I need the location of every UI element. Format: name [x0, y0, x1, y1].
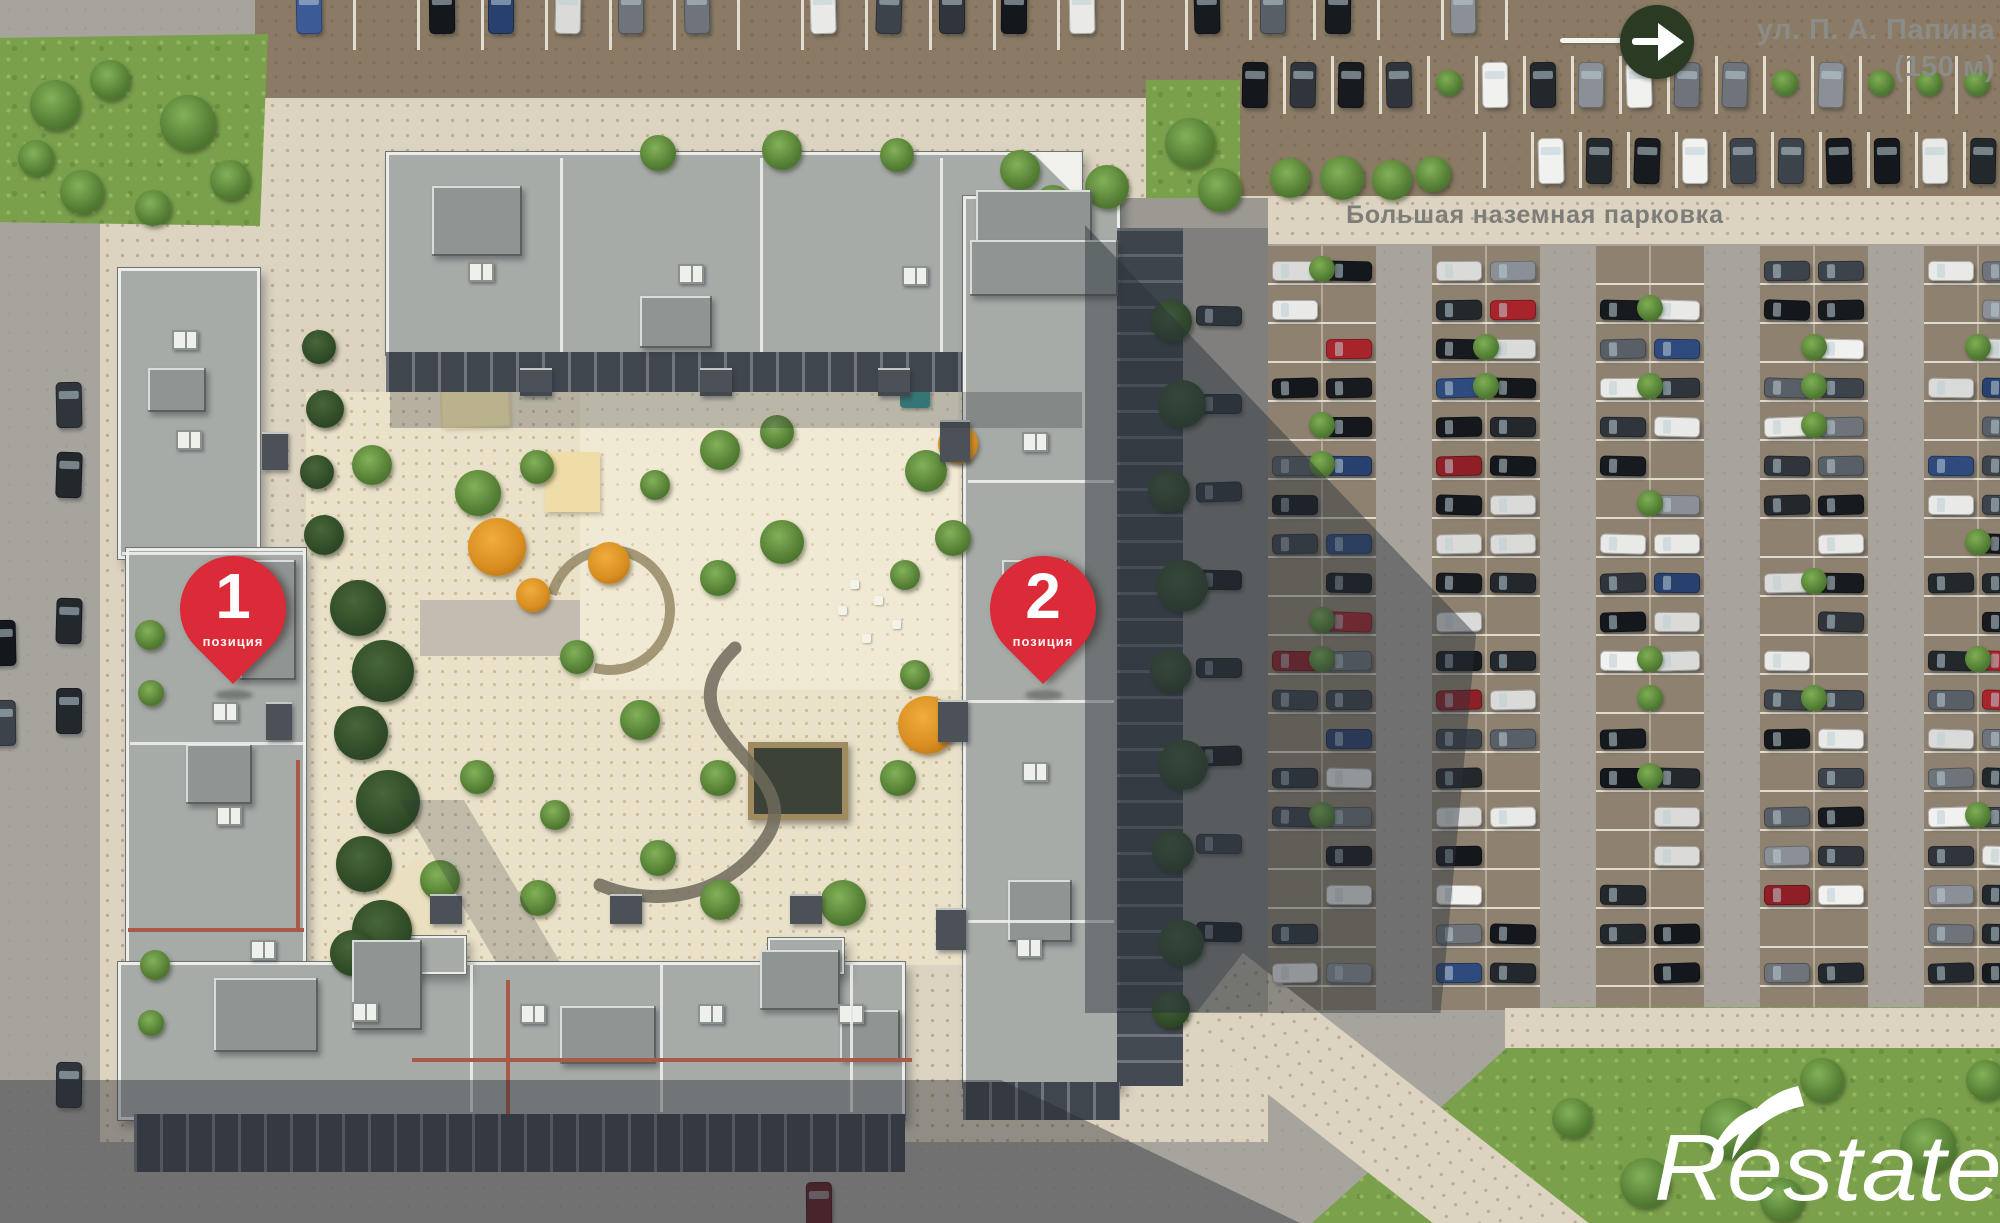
- car: [1482, 62, 1509, 108]
- bush: [1637, 646, 1663, 672]
- car: [1654, 573, 1700, 593]
- car: [1764, 963, 1810, 983]
- car: [1196, 481, 1243, 502]
- roof-seam: [560, 158, 563, 352]
- car-windshield: [1663, 537, 1671, 551]
- tree: [520, 880, 556, 916]
- car: [1928, 728, 1974, 749]
- car: [1654, 962, 1701, 984]
- car: [1928, 767, 1975, 789]
- car: [1326, 534, 1372, 554]
- car: [1654, 924, 1700, 945]
- tree: [540, 800, 570, 830]
- car: [875, 0, 902, 34]
- car-windshield: [1205, 925, 1213, 939]
- car: [1436, 689, 1483, 710]
- car-windshield: [809, 1191, 829, 1199]
- car-windshield: [1827, 381, 1835, 395]
- car-windshield: [1937, 732, 1945, 746]
- tree: [700, 880, 740, 920]
- car: [1928, 923, 1974, 944]
- car-windshield: [1335, 966, 1343, 980]
- car: [1982, 689, 2000, 710]
- roof-hatch: [902, 266, 928, 286]
- roof-hatch: [352, 1002, 378, 1022]
- car-windshield: [1663, 381, 1671, 395]
- roof-hatch: [250, 940, 276, 960]
- tree: [890, 560, 920, 590]
- car-windshield: [1499, 810, 1507, 824]
- bush: [1965, 334, 1991, 360]
- car: [1272, 377, 1319, 398]
- car-windshield: [1937, 810, 1945, 824]
- car-windshield: [1827, 810, 1835, 824]
- dark-tree: [1152, 990, 1190, 1028]
- car: [1764, 845, 1810, 866]
- car: [1193, 0, 1220, 34]
- car: [1326, 377, 1372, 398]
- roof-unit: [640, 296, 712, 348]
- car-windshield: [1335, 810, 1343, 824]
- roof-hatch: [678, 264, 704, 284]
- car-windshield: [1533, 71, 1553, 79]
- car: [1982, 767, 2000, 789]
- tree: [760, 415, 794, 449]
- car: [1436, 417, 1482, 438]
- car-windshield: [1991, 459, 1999, 473]
- car: [1928, 690, 1974, 711]
- roof-seam: [850, 965, 853, 1112]
- car-windshield: [1499, 576, 1507, 590]
- car-windshield: [1609, 459, 1617, 473]
- entrance-stub: [940, 420, 970, 462]
- plaza-object: [862, 634, 871, 643]
- car-windshield: [1499, 420, 1507, 434]
- car: [1818, 456, 1864, 477]
- bush: [1965, 529, 1991, 555]
- car-windshield: [1937, 381, 1945, 395]
- roof-hatch: [1022, 432, 1048, 452]
- car: [1982, 885, 2000, 906]
- terracotta-line: [128, 928, 304, 932]
- car-windshield: [1499, 342, 1507, 356]
- car-windshield: [1445, 966, 1453, 980]
- car: [1338, 62, 1365, 108]
- car-windshield: [1245, 71, 1265, 79]
- car: [1436, 651, 1482, 671]
- pin-caption: позиция: [158, 634, 308, 649]
- car: [1436, 885, 1482, 906]
- car: [1436, 963, 1482, 983]
- car: [1326, 572, 1372, 593]
- car-windshield: [1609, 888, 1617, 902]
- map-pin-1[interactable]: 1 позиция: [158, 552, 308, 712]
- street-arrow-badge[interactable]: [1620, 5, 1694, 79]
- watermark-text: Restate: [1654, 1115, 2000, 1220]
- arrow-right-icon: [1620, 5, 1694, 79]
- car-windshield: [1335, 771, 1343, 785]
- roof-seam: [130, 742, 306, 745]
- car-windshield: [1937, 966, 1945, 980]
- car: [1450, 0, 1477, 34]
- car-windshield: [1991, 810, 1999, 824]
- car-windshield: [1499, 693, 1507, 707]
- car: [1490, 417, 1536, 437]
- car-windshield: [1205, 837, 1213, 851]
- car: [1982, 573, 2000, 594]
- car: [488, 0, 514, 34]
- car: [1982, 377, 2000, 398]
- car-windshield: [1499, 498, 1507, 512]
- car-windshield: [1328, 0, 1348, 5]
- car: [1600, 338, 1647, 359]
- tree: [18, 140, 54, 176]
- car-windshield: [59, 1071, 79, 1079]
- car: [1490, 573, 1536, 594]
- tree: [1552, 1098, 1592, 1138]
- car: [1600, 533, 1647, 554]
- car: [1242, 62, 1269, 108]
- car-windshield: [1281, 654, 1289, 668]
- car: [1326, 729, 1372, 749]
- car-windshield: [1445, 537, 1453, 551]
- tree: [640, 470, 670, 500]
- entrance-stub: [938, 700, 968, 742]
- dark-tree: [302, 330, 336, 364]
- car: [1982, 455, 2000, 476]
- roof-seam: [660, 965, 663, 1112]
- tree: [935, 520, 971, 556]
- car-windshield: [1773, 303, 1781, 317]
- dark-tree: [1158, 740, 1208, 790]
- car-windshield: [1609, 576, 1617, 590]
- car: [1818, 806, 1865, 827]
- tree: [520, 450, 554, 484]
- tree: [210, 160, 250, 200]
- car-windshield: [1499, 654, 1507, 668]
- car-windshield: [1445, 342, 1453, 356]
- car: [1600, 611, 1646, 632]
- car-windshield: [1609, 771, 1617, 785]
- car: [1001, 0, 1027, 34]
- car-windshield: [1925, 147, 1945, 155]
- orange-tree: [516, 578, 550, 612]
- car-windshield: [1445, 576, 1453, 590]
- tree: [138, 1010, 164, 1036]
- car: [1818, 768, 1864, 788]
- car-windshield: [1937, 888, 1945, 902]
- car-windshield: [1281, 381, 1289, 395]
- car-windshield: [1335, 420, 1343, 434]
- bush: [1965, 802, 1991, 828]
- bush: [1801, 373, 1827, 399]
- entrance-stub: [430, 894, 462, 924]
- roof-hatch: [216, 806, 242, 826]
- dark-tree: [1158, 380, 1206, 428]
- car-windshield: [1499, 381, 1507, 395]
- car: [56, 1062, 82, 1108]
- tree: [460, 760, 494, 794]
- car: [1600, 885, 1646, 906]
- car: [1764, 885, 1810, 905]
- car-windshield: [1937, 576, 1945, 590]
- car: [1928, 456, 1974, 477]
- car-windshield: [1281, 498, 1289, 512]
- car: [1260, 0, 1286, 34]
- car: [55, 452, 83, 499]
- car-windshield: [1663, 966, 1671, 980]
- tree: [1000, 150, 1040, 190]
- car-windshield: [1991, 771, 1999, 785]
- car: [555, 0, 582, 34]
- roof-hatch: [468, 262, 494, 282]
- tree: [90, 60, 130, 100]
- tree: [820, 880, 866, 926]
- tree: [880, 760, 916, 796]
- street-leader-line: [1560, 38, 1622, 43]
- car-windshield: [1781, 147, 1801, 155]
- car-windshield: [1335, 693, 1343, 707]
- car: [1982, 729, 2000, 749]
- car-windshield: [1827, 303, 1835, 317]
- car: [1490, 260, 1536, 281]
- car: [1490, 728, 1536, 749]
- car-windshield: [1827, 771, 1835, 785]
- car: [1530, 62, 1556, 108]
- car: [1764, 261, 1810, 282]
- car-windshield: [1827, 264, 1835, 278]
- roof-unit: [186, 744, 252, 804]
- car: [806, 1182, 832, 1223]
- dark-tree: [334, 706, 388, 760]
- roof-seam: [968, 920, 1114, 923]
- car: [1326, 339, 1372, 359]
- entrance-stub: [520, 368, 552, 396]
- car-windshield: [1205, 309, 1213, 323]
- car: [55, 598, 82, 645]
- car: [1730, 138, 1757, 184]
- car-windshield: [1281, 966, 1289, 980]
- car: [1196, 658, 1242, 678]
- dark-tree: [304, 515, 344, 555]
- tree: [1198, 168, 1242, 212]
- parking-label: Большая наземная парковка: [1255, 201, 1815, 230]
- car: [1490, 495, 1536, 515]
- roof-seam: [470, 965, 473, 1112]
- car: [1600, 572, 1647, 593]
- car: [1436, 923, 1483, 944]
- dark-tree: [1158, 920, 1204, 966]
- car-windshield: [1773, 966, 1781, 980]
- terracotta-line: [506, 980, 510, 1114]
- watermark-logo: Restate: [1648, 1086, 2000, 1223]
- car: [1928, 884, 1974, 905]
- car-windshield: [1499, 303, 1507, 317]
- car-windshield: [1281, 927, 1289, 941]
- car-windshield: [1609, 303, 1617, 317]
- car-windshield: [1663, 303, 1671, 317]
- car: [1654, 846, 1700, 866]
- bush: [1637, 295, 1663, 321]
- roof-unit: [432, 186, 522, 256]
- car-windshield: [1773, 849, 1781, 863]
- tree: [1165, 118, 1215, 168]
- car-windshield: [1827, 420, 1835, 434]
- car-windshield: [1663, 771, 1671, 785]
- car: [1325, 0, 1351, 34]
- plaza-object: [892, 620, 901, 629]
- map-pin-2[interactable]: 2 позиция: [968, 552, 1118, 712]
- car: [1537, 138, 1564, 185]
- car-windshield: [59, 607, 79, 616]
- car-windshield: [1281, 693, 1289, 707]
- car-windshield: [1445, 303, 1453, 317]
- car-windshield: [1991, 927, 1999, 941]
- car-windshield: [1827, 576, 1835, 590]
- dark-tree: [1152, 830, 1194, 872]
- dark-tree: [352, 640, 414, 702]
- car-windshield: [1937, 654, 1945, 668]
- car: [1436, 456, 1482, 477]
- car: [1326, 846, 1372, 866]
- car: [1982, 963, 2000, 984]
- car: [1436, 572, 1482, 593]
- car: [1490, 533, 1536, 554]
- car-windshield: [1609, 420, 1617, 434]
- dark-tree: [336, 836, 392, 892]
- roof-unit: [760, 950, 840, 1010]
- car-windshield: [1991, 732, 1999, 746]
- car: [1436, 846, 1482, 866]
- bush: [1801, 685, 1827, 711]
- car-windshield: [1877, 147, 1897, 155]
- tree: [60, 170, 104, 214]
- car-windshield: [1281, 264, 1289, 278]
- car-windshield: [813, 0, 833, 5]
- bush: [1309, 451, 1335, 477]
- dark-tree: [356, 770, 420, 834]
- tree: [700, 760, 736, 796]
- car-windshield: [1685, 147, 1705, 155]
- car: [1682, 138, 1708, 184]
- car-windshield: [1829, 147, 1849, 156]
- car-windshield: [558, 0, 578, 5]
- car: [683, 0, 710, 34]
- car-windshield: [491, 0, 511, 5]
- tree: [1372, 160, 1412, 200]
- bush: [1309, 256, 1335, 282]
- car: [1436, 767, 1483, 788]
- car-windshield: [1281, 537, 1289, 551]
- car: [0, 620, 17, 667]
- car-windshield: [1263, 0, 1283, 5]
- car: [1600, 455, 1646, 476]
- entrance-stub: [700, 368, 732, 396]
- car-windshield: [1004, 0, 1024, 5]
- tree: [30, 80, 80, 130]
- bush: [1637, 685, 1663, 711]
- car-windshield: [1197, 0, 1217, 5]
- plaza-object: [838, 606, 847, 615]
- car: [1928, 846, 1974, 866]
- car-windshield: [1827, 459, 1835, 473]
- car: [1654, 339, 1700, 360]
- car: [1818, 846, 1864, 866]
- car-windshield: [1341, 71, 1361, 79]
- bush: [1801, 334, 1827, 360]
- car-windshield: [1991, 849, 1999, 863]
- car-windshield: [1609, 381, 1617, 395]
- car: [1069, 0, 1096, 34]
- pin-shadow: [215, 690, 253, 700]
- street-name: ул. П. А. Папина: [1703, 12, 1995, 49]
- car-windshield: [1991, 576, 1999, 590]
- car: [1818, 300, 1864, 321]
- car-windshield: [1663, 342, 1671, 356]
- car-windshield: [1937, 459, 1945, 473]
- roof-seam: [760, 158, 763, 352]
- car: [1289, 62, 1316, 109]
- car: [1436, 494, 1483, 515]
- car-windshield: [1335, 342, 1343, 356]
- car: [1928, 378, 1974, 399]
- car-windshield: [1827, 498, 1835, 512]
- car-windshield: [1637, 147, 1657, 156]
- car: [1818, 962, 1865, 983]
- car-windshield: [1937, 849, 1945, 863]
- car: [56, 382, 83, 429]
- pin-shadow: [1025, 690, 1063, 700]
- car: [1982, 495, 2000, 516]
- car-windshield: [1827, 615, 1835, 629]
- tree: [352, 445, 392, 485]
- car-windshield: [1589, 147, 1609, 155]
- tree: [135, 190, 171, 226]
- bush: [1309, 646, 1335, 672]
- plaza-object: [850, 580, 859, 589]
- pin-number: 1: [158, 564, 308, 628]
- car: [1600, 728, 1647, 749]
- car-windshield: [1827, 849, 1835, 863]
- car-windshield: [1445, 693, 1453, 707]
- car-windshield: [1991, 498, 1999, 512]
- dark-tree: [1150, 650, 1192, 692]
- car-windshield: [1773, 459, 1781, 473]
- dark-tree: [306, 390, 344, 428]
- car: [809, 0, 836, 34]
- car: [1490, 923, 1537, 944]
- car-windshield: [1499, 537, 1507, 551]
- car: [1818, 261, 1864, 282]
- car-windshield: [1827, 342, 1835, 356]
- car-windshield: [1445, 732, 1453, 746]
- bush: [1801, 568, 1827, 594]
- car-windshield: [1733, 147, 1753, 155]
- car-windshield: [1445, 927, 1453, 941]
- dark-tree: [330, 580, 386, 636]
- car-windshield: [1499, 459, 1507, 473]
- car-windshield: [1773, 264, 1781, 278]
- car-windshield: [1581, 71, 1601, 79]
- tree: [762, 130, 802, 170]
- pin-number: 2: [968, 564, 1118, 628]
- car: [1928, 962, 1975, 984]
- car: [1764, 651, 1810, 672]
- car-windshield: [1335, 381, 1343, 395]
- car: [0, 700, 16, 746]
- car: [1818, 533, 1864, 554]
- roof-seam: [968, 480, 1114, 483]
